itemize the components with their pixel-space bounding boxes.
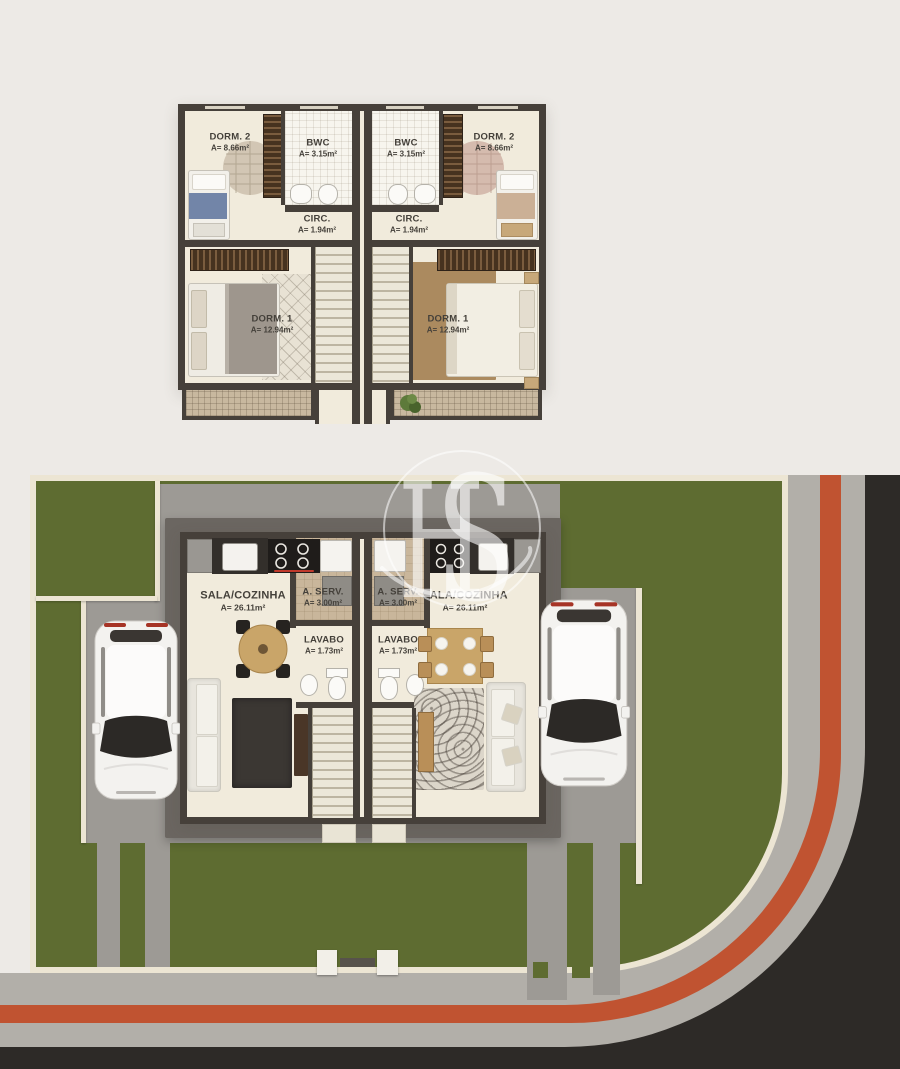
staircase-upper <box>315 247 353 383</box>
room-label-serv-right: A. SERV.A= 3.00m² <box>377 587 418 608</box>
entry-step <box>322 824 356 843</box>
bed-single <box>188 170 230 240</box>
interior-wall <box>412 708 416 818</box>
wardrobe <box>443 114 463 198</box>
nightstand <box>524 377 539 389</box>
gate-post <box>377 950 398 975</box>
interior-wall <box>296 620 352 626</box>
interior-wall <box>372 620 424 626</box>
round-dining-table <box>232 618 294 680</box>
staircase-upper <box>372 247 410 383</box>
bathroom-sink <box>290 184 312 204</box>
fridge <box>187 539 214 573</box>
toilet-bowl <box>328 676 346 700</box>
garden-wall-right-drive <box>636 588 642 884</box>
garden-wall-left-edge <box>81 598 86 843</box>
interior-wall <box>439 111 443 205</box>
room-label-lavabo-right: LAVABOA= 1.73m² <box>378 635 418 656</box>
wardrobe <box>263 114 283 198</box>
interior-wall <box>372 240 539 247</box>
wardrobe <box>437 249 536 271</box>
dining-table <box>427 628 483 684</box>
garden-wall-topleft-vert <box>155 481 160 601</box>
interior-wall <box>311 247 315 383</box>
room-label-bwc-right: BWCA= 3.15m² <box>387 138 425 159</box>
plant <box>396 390 426 420</box>
room-label-circ-right: CIRC.A= 1.94m² <box>390 214 428 235</box>
toilet-upper <box>318 184 338 205</box>
grass-paver <box>572 962 590 978</box>
interior-wall <box>281 111 285 205</box>
gate-post <box>317 950 337 975</box>
garden-wall-topleft-horiz <box>36 596 157 601</box>
floor-plan-rendering: SALA/COZINHAA= 26.11m² SALA/COZINHAA= 26… <box>0 0 900 1069</box>
bed-single <box>496 170 538 240</box>
lavabo-sink <box>300 674 318 696</box>
interior-wall <box>372 205 439 212</box>
kitchen-sink <box>222 543 258 571</box>
left-margin <box>0 475 30 973</box>
car-right <box>538 596 630 790</box>
bathroom-sink <box>414 184 436 204</box>
room-label-dorm2-right: DORM. 2A= 8.66m² <box>474 132 515 153</box>
staircase <box>372 708 413 818</box>
room-label-sala-left: SALA/COZINHAA= 26.11m² <box>200 590 286 613</box>
tv-cabinet <box>418 712 434 772</box>
interior-wall <box>308 708 312 818</box>
washer <box>320 540 352 572</box>
party-wall <box>364 532 372 824</box>
stove-burners <box>430 539 470 573</box>
toilet-upper <box>388 184 408 205</box>
sofa <box>187 678 221 792</box>
party-wall <box>364 104 372 424</box>
car-left <box>92 616 180 804</box>
party-wall <box>352 532 360 824</box>
interior-wall <box>409 247 413 383</box>
room-label-lavabo-left: LAVABOA= 1.73m² <box>304 635 344 656</box>
room-label-dorm2-left: DORM. 2A= 8.66m² <box>210 132 251 153</box>
kitchen-sink <box>478 543 508 571</box>
washer <box>374 540 406 572</box>
wardrobe <box>190 249 289 271</box>
room-label-bwc-left: BWCA= 3.15m² <box>299 138 337 159</box>
room-label-circ-left: CIRC.A= 1.94m² <box>298 214 336 235</box>
room-label-dorm1-left: DORM. 1A= 12.94m² <box>251 314 293 335</box>
room-label-dorm1-right: DORM. 1A= 12.94m² <box>427 314 469 335</box>
walkway-track <box>145 843 170 967</box>
party-wall <box>352 104 360 424</box>
tv-cabinet <box>294 714 308 776</box>
entry-step <box>372 824 406 843</box>
driveway-grass-strip <box>567 843 593 962</box>
pedestrian-gate <box>340 958 375 967</box>
fridge <box>514 539 541 573</box>
nightstand <box>524 272 539 284</box>
interior-wall <box>185 240 352 247</box>
driveway-track <box>593 843 620 995</box>
grass-paver <box>533 962 548 978</box>
room-label-serv-left: A. SERV.A= 3.00m² <box>302 587 343 608</box>
walkway-track <box>97 843 120 967</box>
interior-wall <box>285 205 352 212</box>
stove-burners <box>268 539 320 573</box>
toilet-bowl <box>380 676 398 700</box>
staircase <box>312 708 353 818</box>
party-wall-gap <box>360 111 364 417</box>
living-rug <box>232 698 292 788</box>
sofa <box>486 682 526 792</box>
room-label-sala-right: SALA/COZINHAA= 26.11m² <box>422 590 508 613</box>
balcony-left <box>182 390 315 420</box>
